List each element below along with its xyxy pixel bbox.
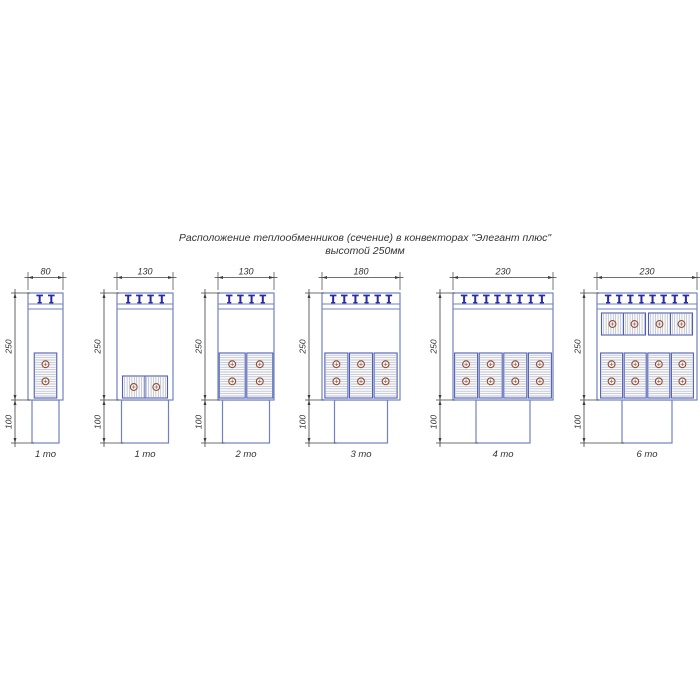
width-dimension: 180 <box>319 267 404 291</box>
casing-height-label: 250 <box>429 339 439 354</box>
convector-diagram-5: 2302501004 то <box>429 267 557 461</box>
dimension-arrow-icon <box>103 395 106 400</box>
dimension-arrow-icon <box>58 276 63 279</box>
width-dimension: 80 <box>25 267 67 291</box>
tube-circle <box>678 321 685 328</box>
convector-diagram-2: 1302501001 то <box>93 267 177 461</box>
tube-circle <box>42 361 49 368</box>
dimension-arrow-icon <box>308 400 311 405</box>
dimension-arrow-icon <box>453 276 458 279</box>
heat-exchanger-block <box>671 353 693 398</box>
casing-height-label: 250 <box>573 339 583 354</box>
dimension-arrow-icon <box>218 276 223 279</box>
dimension-arrow-icon <box>168 276 173 279</box>
width-dimension-label: 230 <box>638 267 654 277</box>
tube-circle <box>537 378 544 385</box>
heat-exchanger-block <box>34 353 57 398</box>
heat-exchanger-block <box>648 353 670 398</box>
tube-circle <box>229 361 236 368</box>
tube-circle <box>608 361 615 368</box>
tube-circle <box>656 321 663 328</box>
width-dimension-label: 180 <box>353 267 368 277</box>
dimension-arrow-icon <box>204 395 207 400</box>
width-dimension-label: 130 <box>137 267 152 277</box>
dimension-arrow-icon <box>439 395 442 400</box>
tube-circle <box>130 384 137 391</box>
tube-circle <box>632 378 639 385</box>
channel-height-label: 100 <box>573 415 583 429</box>
caption-label: 1 то <box>134 449 155 460</box>
channel-height-label: 100 <box>93 415 103 429</box>
convector-diagram-4: 1802501003 то <box>298 267 404 461</box>
dimension-arrow-icon <box>308 438 311 443</box>
tube-circle <box>608 378 615 385</box>
casing-height-label: 250 <box>194 339 204 354</box>
tube-circle <box>655 361 662 368</box>
dimension-arrow-icon <box>439 438 442 443</box>
casing-height-label: 250 <box>298 339 308 354</box>
casing-height-label: 250 <box>4 339 14 354</box>
heat-exchanger-block <box>504 353 527 398</box>
dimension-arrow-icon <box>395 276 400 279</box>
width-dimension: 230 <box>594 267 700 291</box>
caption-label: 4 то <box>492 449 513 460</box>
heat-exchanger-block <box>350 353 373 398</box>
heat-exchanger-block <box>247 353 273 398</box>
heat-exchanger-block <box>601 353 623 398</box>
width-dimension-label: 130 <box>238 267 253 277</box>
caption-label: 2 то <box>234 449 256 460</box>
dimension-arrow-icon <box>28 276 33 279</box>
tube-circle <box>632 361 639 368</box>
tube-circle <box>382 378 389 385</box>
channel-box <box>122 400 169 443</box>
tube-circle <box>333 378 340 385</box>
dimension-arrow-icon <box>204 293 207 298</box>
dimension-arrow-icon <box>14 400 17 405</box>
tube-circle <box>229 378 236 385</box>
dimension-arrow-icon <box>439 293 442 298</box>
width-dimension: 130 <box>114 267 177 291</box>
tube-circle <box>333 361 340 368</box>
heat-exchanger-block <box>479 353 502 398</box>
heat-exchanger-block <box>624 353 646 398</box>
tube-circle <box>487 361 494 368</box>
dimension-arrow-icon <box>583 438 586 443</box>
tube-circle <box>487 378 494 385</box>
channel-box <box>335 400 388 443</box>
convector-diagram-3: 1302501002 то <box>194 267 278 461</box>
dimension-arrow-icon <box>322 276 327 279</box>
heat-exchanger-block <box>374 353 397 398</box>
dimension-arrow-icon <box>103 438 106 443</box>
heat-exchanger-block <box>649 313 693 335</box>
casing-height-label: 250 <box>93 339 103 354</box>
dimension-arrow-icon <box>692 276 697 279</box>
tube-circle <box>256 378 263 385</box>
channel-height-label: 100 <box>429 415 439 429</box>
dimension-arrow-icon <box>597 276 602 279</box>
tube-circle <box>153 384 160 391</box>
tube-circle <box>42 378 49 385</box>
drawing-canvas: Расположение теплообменников (сечение) в… <box>0 0 700 700</box>
convector-diagram-1: 802501001 то <box>4 267 67 461</box>
tube-circle <box>679 361 686 368</box>
tube-circle <box>382 361 389 368</box>
technical-drawing: 802501001 то1302501001 то1302501002 то18… <box>0 0 700 700</box>
dimension-arrow-icon <box>204 400 207 405</box>
heat-exchanger-block <box>528 353 551 398</box>
dimension-arrow-icon <box>14 395 17 400</box>
tube-circle <box>358 378 365 385</box>
tube-circle <box>537 361 544 368</box>
channel-height-label: 100 <box>194 415 204 429</box>
channel-box <box>32 400 59 443</box>
caption-label: 3 то <box>350 449 371 460</box>
dimension-arrow-icon <box>14 438 17 443</box>
dimension-arrow-icon <box>548 276 553 279</box>
heat-exchanger-block <box>123 376 168 398</box>
tube-circle <box>463 361 470 368</box>
tube-circle <box>512 378 519 385</box>
dimension-arrow-icon <box>583 395 586 400</box>
dimension-arrow-icon <box>308 395 311 400</box>
width-dimension: 230 <box>450 267 557 291</box>
dimension-arrow-icon <box>103 293 106 298</box>
channel-height-label: 100 <box>4 415 14 429</box>
width-dimension-label: 80 <box>40 267 50 277</box>
tube-circle <box>463 378 470 385</box>
dimension-arrow-icon <box>583 293 586 298</box>
tube-circle <box>609 321 616 328</box>
channel-box <box>622 400 672 443</box>
tube-circle <box>256 361 263 368</box>
dimension-arrow-icon <box>117 276 122 279</box>
convector-diagram-6: 2302501006 то <box>573 267 700 461</box>
caption-label: 6 то <box>636 449 657 460</box>
tube-circle <box>512 361 519 368</box>
dimension-arrow-icon <box>103 400 106 405</box>
dimension-arrow-icon <box>204 438 207 443</box>
dimension-arrow-icon <box>583 400 586 405</box>
width-dimension-label: 230 <box>494 267 510 277</box>
heat-exchanger-block <box>325 353 348 398</box>
channel-height-label: 100 <box>298 415 308 429</box>
tube-circle <box>358 361 365 368</box>
dimension-arrow-icon <box>439 400 442 405</box>
heat-exchanger-block <box>219 353 245 398</box>
dimension-arrow-icon <box>14 293 17 298</box>
tube-circle <box>679 378 686 385</box>
tube-circle <box>655 378 662 385</box>
caption-label: 1 то <box>35 449 56 460</box>
heat-exchanger-block <box>455 353 478 398</box>
tube-circle <box>631 321 638 328</box>
dimension-arrow-icon <box>308 293 311 298</box>
channel-box <box>223 400 270 443</box>
channel-box <box>476 400 530 443</box>
width-dimension: 130 <box>215 267 278 291</box>
heat-exchanger-block <box>602 313 646 335</box>
dimension-arrow-icon <box>269 276 274 279</box>
